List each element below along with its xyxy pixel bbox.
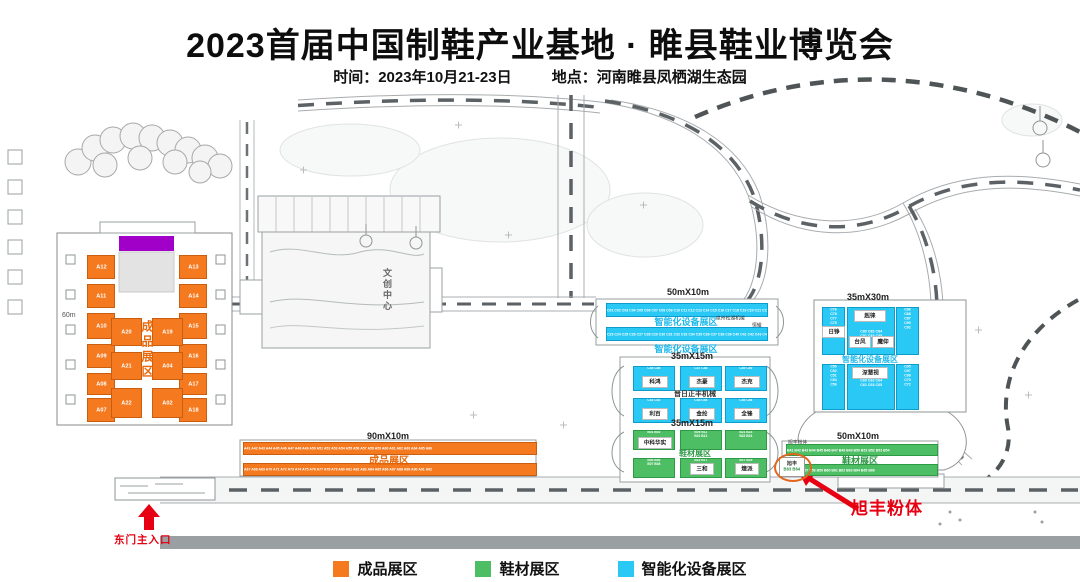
south-orange-size-label: 90mX10m (352, 431, 424, 441)
legend-item-equipment: 智能化设备展区 (618, 558, 747, 579)
material-booth: B21 B23 B22 B24 (725, 430, 767, 450)
hall-booth: A13 (179, 255, 207, 279)
hall-zone-label: 成品展区 (139, 320, 156, 380)
stage-area (119, 252, 174, 292)
hall-booth: A11 (87, 284, 115, 308)
hall-booth: A12 (87, 255, 115, 279)
entrance-parking (115, 478, 215, 500)
hall-booth: A15 (179, 313, 207, 339)
material-zone-label: 鞋材展区 (630, 448, 760, 459)
east-chip: 日铮 (822, 326, 845, 338)
south-green-zone-label: 鞋材展区 (818, 454, 902, 467)
hall-booth: A04 (152, 352, 183, 380)
side-label-hengyao: 恒耀 (752, 321, 762, 328)
legend-swatch-green (475, 561, 491, 577)
east-block-size-label: 35mX30m (830, 292, 906, 302)
machine-booth: C45 C46 科鸿 (633, 366, 675, 391)
east-chip: 台风 (849, 336, 871, 348)
xufeng-callout-label: 旭丰粉体 (851, 494, 923, 519)
hall-booth: A02 (152, 388, 183, 418)
hall-booth: A22 (111, 388, 142, 418)
legend-item-material: 鞋材展区 (475, 558, 559, 579)
material-booth: B01 B03 中科华实 (633, 430, 675, 450)
east-zone-label: 智能化设备展区 (824, 354, 916, 365)
expo-floorplan-poster: 2023首届中国制鞋产业基地 · 睢县鞋业博览会 时间：2023年10月21-2… (0, 0, 1080, 582)
hall-booth: A18 (179, 398, 207, 422)
hall-booth: A17 (179, 373, 207, 395)
east-strip: C95 C97 C98 C70 C72 (896, 364, 919, 410)
material-booth: B09 B11 B10 B12 (680, 430, 722, 450)
legend-swatch-orange (333, 561, 349, 577)
east-chip: 深慧视 (852, 367, 888, 379)
east-strip: C86 C88 C87 C90 C92 (896, 307, 919, 355)
hall-booth: A14 (179, 284, 207, 308)
material-booth: B15 B17 三和 (680, 458, 722, 478)
small-trees-bottom-right (939, 511, 1044, 526)
machine-booth: C55 C56 全锋 (725, 398, 767, 423)
south-orange-zone-label: 成品展区 (330, 452, 448, 467)
east-chip: 赳徕 (854, 310, 886, 322)
east-strip: C50 C52 C51 C54 C56 (822, 364, 845, 410)
hall-booth: A16 (179, 344, 207, 368)
north-strips-size-label: 50mX10m (652, 287, 724, 297)
south-green-size-label: 50mX10m (824, 431, 892, 441)
cultural-center-label: 文创中心 (381, 268, 394, 328)
hall-width-label: 60m (62, 312, 76, 319)
entrance-arrow-icon (138, 504, 160, 530)
legend-swatch-cyan (618, 561, 634, 577)
tree-canopy (65, 123, 232, 183)
hall-booth: A19 (152, 318, 183, 346)
hall-booth: A20 (111, 318, 142, 346)
xufeng-highlight-ellipse (774, 453, 812, 482)
material-block-size-label: 35mX15m (656, 418, 728, 428)
stage-banner (119, 236, 174, 251)
center-building-outline (240, 196, 442, 348)
machine-block-size-label: 35mX15m (656, 351, 728, 361)
material-booth: B05 B06 B07 B08 (633, 458, 675, 478)
hall-booth: A21 (111, 352, 142, 380)
legend-item-finished: 成品展区 (333, 558, 417, 579)
south-green-left-note: 旭丰粉体 (788, 438, 807, 445)
machine-block-center-label: 晋日正丰机械 (630, 389, 760, 399)
material-booth: B27 B29 煌派 (725, 458, 767, 478)
east-chip: 魔仰 (872, 336, 894, 348)
legend: 成品展区 鞋材展区 智能化设备展区 (0, 558, 1080, 579)
equipment-strip-row2: C23 C24 C25 C26 C27 C28 C29 C30 C31 C32 … (606, 327, 768, 341)
side-label-songhu: 泉州松湖机械 (716, 314, 745, 321)
entrance-label: 东门主入口 (114, 532, 172, 547)
machine-booth: C49 C50 杰克 (725, 366, 767, 391)
bottom-road-band (160, 536, 1080, 549)
left-trees (8, 150, 22, 314)
machine-booth: C47 C48 杰豪 (680, 366, 722, 391)
